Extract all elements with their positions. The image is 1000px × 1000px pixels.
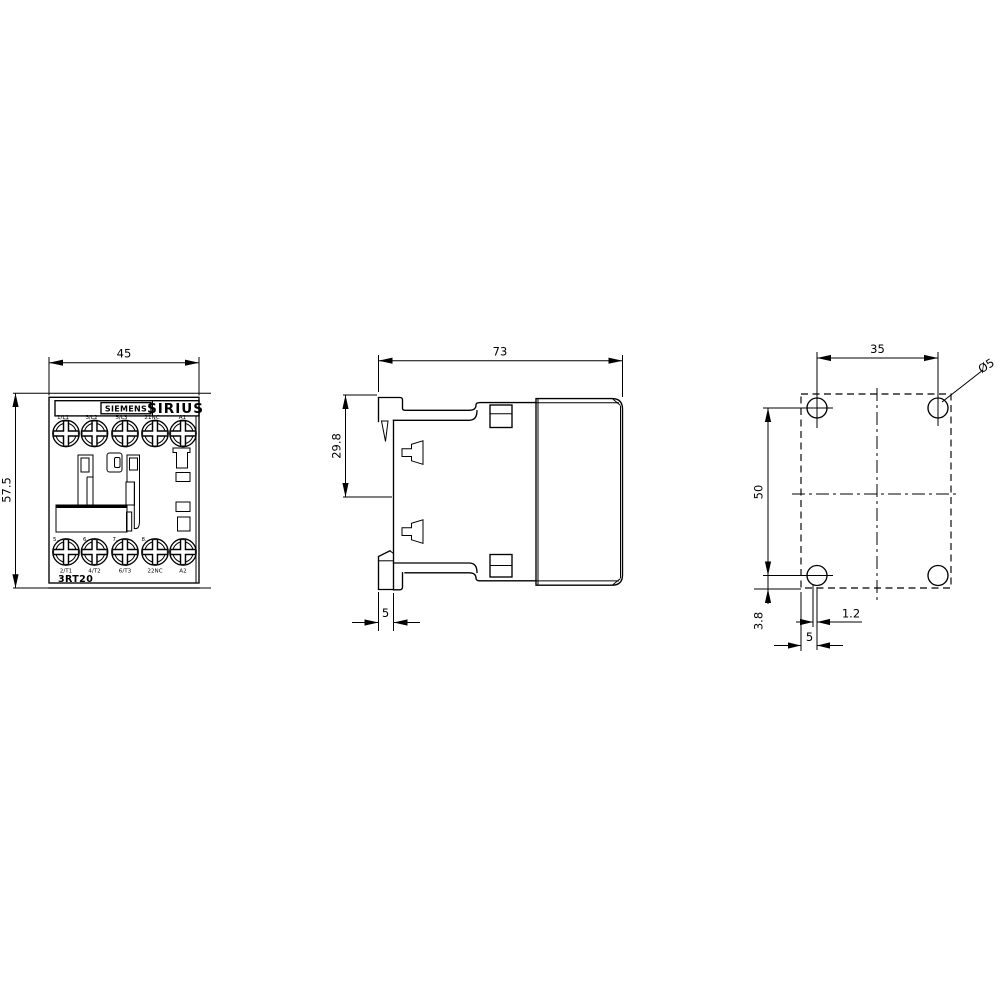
screw-terminal-icon [142, 539, 168, 565]
dim-hole-spacing-v-label: 50 [752, 485, 766, 500]
screw-terminal-icon [112, 539, 138, 565]
screw-terminal-icon [112, 420, 138, 446]
dim-width-label: 45 [117, 347, 132, 361]
canvas-background [0, 0, 1000, 1000]
dimension-drawing: 45 57.5 SIEMENS SIRIUS 1/L1 3/L2 [0, 0, 1000, 1000]
dim-depth-label: 73 [493, 345, 508, 359]
brand-label: SIEMENS [105, 404, 147, 413]
dim-center-offset-label: 1.2 [842, 607, 860, 621]
screw-terminal-icon [81, 539, 107, 565]
screw-terminal-icon [53, 420, 79, 446]
screw-terminal-icon [53, 539, 79, 565]
dim-hole-spacing-h-label: 35 [870, 342, 885, 356]
screw-terminal-icon [170, 420, 196, 446]
screw-terminal-icon [170, 539, 196, 565]
screw-terminal-icon [142, 420, 168, 446]
dim-rail-depth-label: 5 [382, 606, 389, 620]
terminal-label: A2 [179, 569, 186, 575]
dim-rail-height-label: 29.8 [330, 433, 344, 459]
model-label: 3RT20 [58, 574, 93, 585]
dim-height-label: 57.5 [0, 477, 14, 503]
dim-bottom-offset-label: 3.8 [752, 612, 766, 630]
terminal-label: 22NC [147, 569, 162, 575]
dim-edge-offset-label: 5 [806, 630, 813, 644]
drawing-page: 45 57.5 SIEMENS SIRIUS 1/L1 3/L2 [0, 0, 1000, 1000]
screw-terminal-icon [81, 420, 107, 446]
terminal-label: 6/T3 [119, 569, 132, 575]
